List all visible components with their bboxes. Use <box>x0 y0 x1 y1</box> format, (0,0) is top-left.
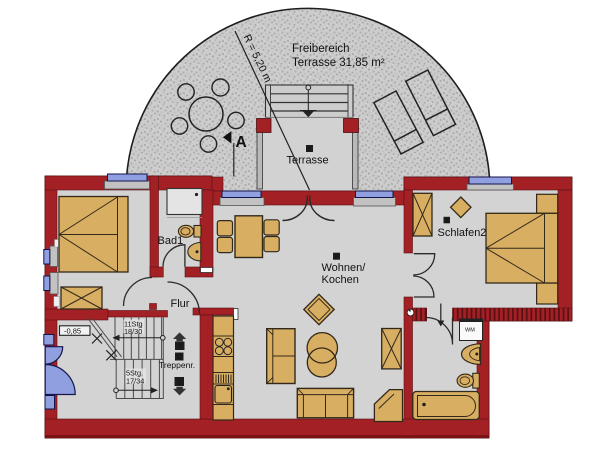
svg-text:Flur: Flur <box>171 298 190 310</box>
svg-text:2: 2 <box>178 343 182 350</box>
svg-text:Wohnen/: Wohnen/ <box>322 262 367 274</box>
svg-text:2: 2 <box>445 218 448 224</box>
svg-text:17/34: 17/34 <box>126 377 144 386</box>
svg-text:3: 3 <box>177 379 181 386</box>
svg-text:Terrasse: Terrasse <box>287 155 329 167</box>
svg-text:18/30: 18/30 <box>124 327 142 336</box>
svg-text:Treppenr.: Treppenr. <box>159 360 195 370</box>
svg-text:-0,85: -0,85 <box>64 326 81 335</box>
svg-text:WM: WM <box>465 328 475 334</box>
svg-text:Kochen: Kochen <box>322 274 359 286</box>
svg-text:Freibereich: Freibereich <box>292 43 350 55</box>
svg-text:2: 2 <box>335 255 338 261</box>
svg-text:A: A <box>236 134 247 151</box>
svg-text:Schlafen2: Schlafen2 <box>438 227 487 239</box>
svg-text:C: C <box>177 355 182 361</box>
svg-text:Bad1: Bad1 <box>158 235 184 247</box>
svg-text:2: 2 <box>308 147 311 153</box>
svg-text:Terrasse 31,85 m²: Terrasse 31,85 m² <box>292 57 385 69</box>
